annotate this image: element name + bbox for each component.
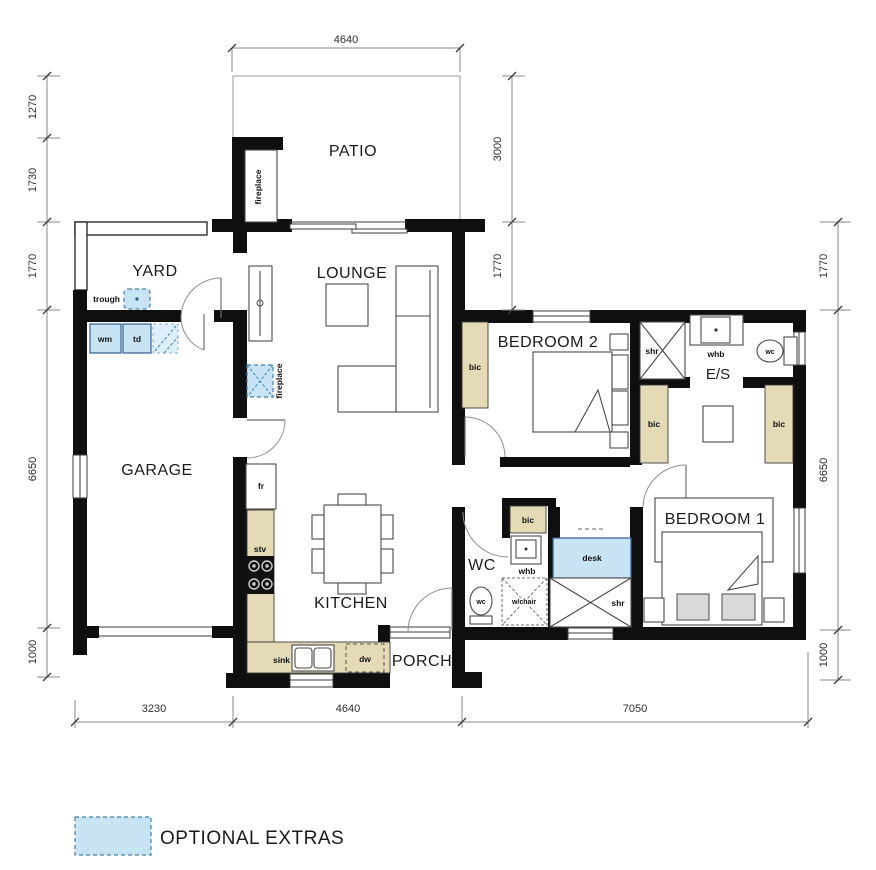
trough-label: trough: [93, 294, 120, 304]
room-label-ensuite: E/S: [706, 366, 730, 383]
dim-left-1270: 1270: [27, 95, 39, 119]
td-label: td: [133, 334, 141, 344]
bedroom2-bed: [533, 334, 628, 448]
garage-door: [99, 627, 212, 636]
dim-bottom-4640: 4640: [336, 703, 360, 715]
shr-hall-label: shr: [611, 598, 625, 608]
dim-right-1000: 1000: [818, 643, 830, 667]
optional-counter-extension: [153, 324, 178, 353]
dimension-right: 1770 6650 1000: [818, 218, 851, 684]
wc-es-label: wc: [764, 349, 774, 356]
dim-inner-3000: 3000: [492, 137, 504, 161]
wc-door: [463, 512, 508, 557]
lounge-fireplace-label: fireplace: [274, 363, 284, 398]
ensuite-basin: whb: [690, 315, 743, 359]
dim-bottom-3230: 3230: [142, 703, 166, 715]
tumble-dryer: td: [123, 324, 151, 353]
bedroom1-window: [794, 508, 805, 573]
dimension-inner-right: 3000 1770: [492, 72, 525, 314]
washing-machine: wm: [90, 324, 121, 353]
room-label-yard: YARD: [132, 263, 177, 280]
floor-plan-page: fireplace fireplace trough wm td fr stv: [0, 0, 876, 870]
room-label-bedroom1: BEDROOM 1: [665, 511, 766, 528]
legend-label: OPTIONAL EXTRAS: [160, 828, 344, 849]
bic-wc-label: bic: [522, 515, 535, 525]
room-label-lounge: LOUNGE: [317, 265, 388, 282]
dim-bottom-7050: 7050: [623, 703, 647, 715]
dim-left-1730: 1730: [27, 168, 39, 192]
dimension-left: 1270 1730 1770 6650 1000: [27, 72, 60, 681]
dressing-stool: [703, 406, 733, 442]
garage-window: [73, 455, 87, 498]
dim-inner-1770: 1770: [492, 254, 504, 278]
front-door-sill: [390, 627, 450, 638]
ensuite-shower: shr: [640, 322, 685, 379]
room-label-bedroom2: BEDROOM 2: [498, 334, 599, 351]
dim-right-1770: 1770: [818, 254, 830, 278]
wc-toilet: wc: [470, 587, 492, 624]
hall-window: [568, 628, 613, 639]
room-label-garage: GARAGE: [121, 462, 192, 479]
desk-optional: desk: [553, 529, 631, 578]
floor-plan-drawing: fireplace fireplace trough wm td fr stv: [0, 0, 876, 870]
coffee-table: [326, 284, 368, 326]
room-label-patio: PATIO: [329, 143, 377, 160]
bedroom2-door: [465, 417, 505, 457]
desk-label: desk: [582, 553, 602, 563]
ensuite-cupboard-right: bic: [765, 385, 793, 463]
hall-shower: shr: [550, 578, 631, 627]
ensuite-cupboard-left: bic: [640, 385, 668, 463]
whb-wc-label: whb: [518, 566, 536, 576]
ensuite-toilet: wc: [757, 337, 797, 365]
yard-to-garage-door: [181, 314, 204, 350]
wc-basin: whb: [511, 536, 541, 576]
shr-es-label: shr: [645, 346, 659, 356]
dw-label: dw: [359, 654, 371, 664]
sideboard: [249, 266, 272, 341]
dim-top-4640: 4640: [334, 34, 358, 46]
lounge-sliding-door: [290, 222, 407, 233]
legend: OPTIONAL EXTRAS: [75, 817, 344, 855]
front-door: [408, 588, 452, 632]
dimension-top: 4640: [228, 34, 464, 72]
fridge: fr: [246, 464, 276, 509]
dim-left-1000: 1000: [27, 640, 39, 664]
whb-es-label: whb: [707, 349, 725, 359]
patio-fireplace: fireplace: [245, 150, 277, 222]
bedroom2-window: [533, 311, 590, 322]
dim-right-6650: 6650: [818, 458, 830, 482]
stv-label: stv: [254, 544, 267, 554]
room-label-kitchen: KITCHEN: [314, 595, 388, 612]
bic-es-left-label: bic: [648, 419, 661, 429]
dim-left-6650: 6650: [27, 457, 39, 481]
dim-left-1770: 1770: [27, 254, 39, 278]
bic-es-right-label: bic: [773, 419, 786, 429]
wc-nook-cupboard: bic: [510, 506, 546, 533]
wc-wc-label: wc: [475, 599, 485, 606]
trough: trough: [93, 289, 150, 309]
fr-label: fr: [258, 481, 265, 491]
lounge-fireplace-optional: fireplace: [247, 363, 284, 398]
kitchen-window: [290, 674, 333, 687]
bic-bedroom2-label: bic: [469, 362, 482, 372]
kitchen-table: [312, 494, 393, 594]
sink-label: sink: [273, 655, 290, 665]
wheelchair-space: w/chair: [502, 578, 547, 625]
bedroom2-cupboard: bic: [462, 322, 488, 408]
wchair-label: w/chair: [511, 599, 536, 606]
patio-fireplace-label: fireplace: [253, 169, 263, 204]
room-label-wc: WC: [468, 557, 496, 574]
room-label-porch: PORCH: [392, 653, 452, 670]
garage-to-kitchen-door: [247, 420, 285, 458]
wm-label: wm: [97, 334, 113, 344]
legend-optional-swatch: [75, 817, 151, 855]
